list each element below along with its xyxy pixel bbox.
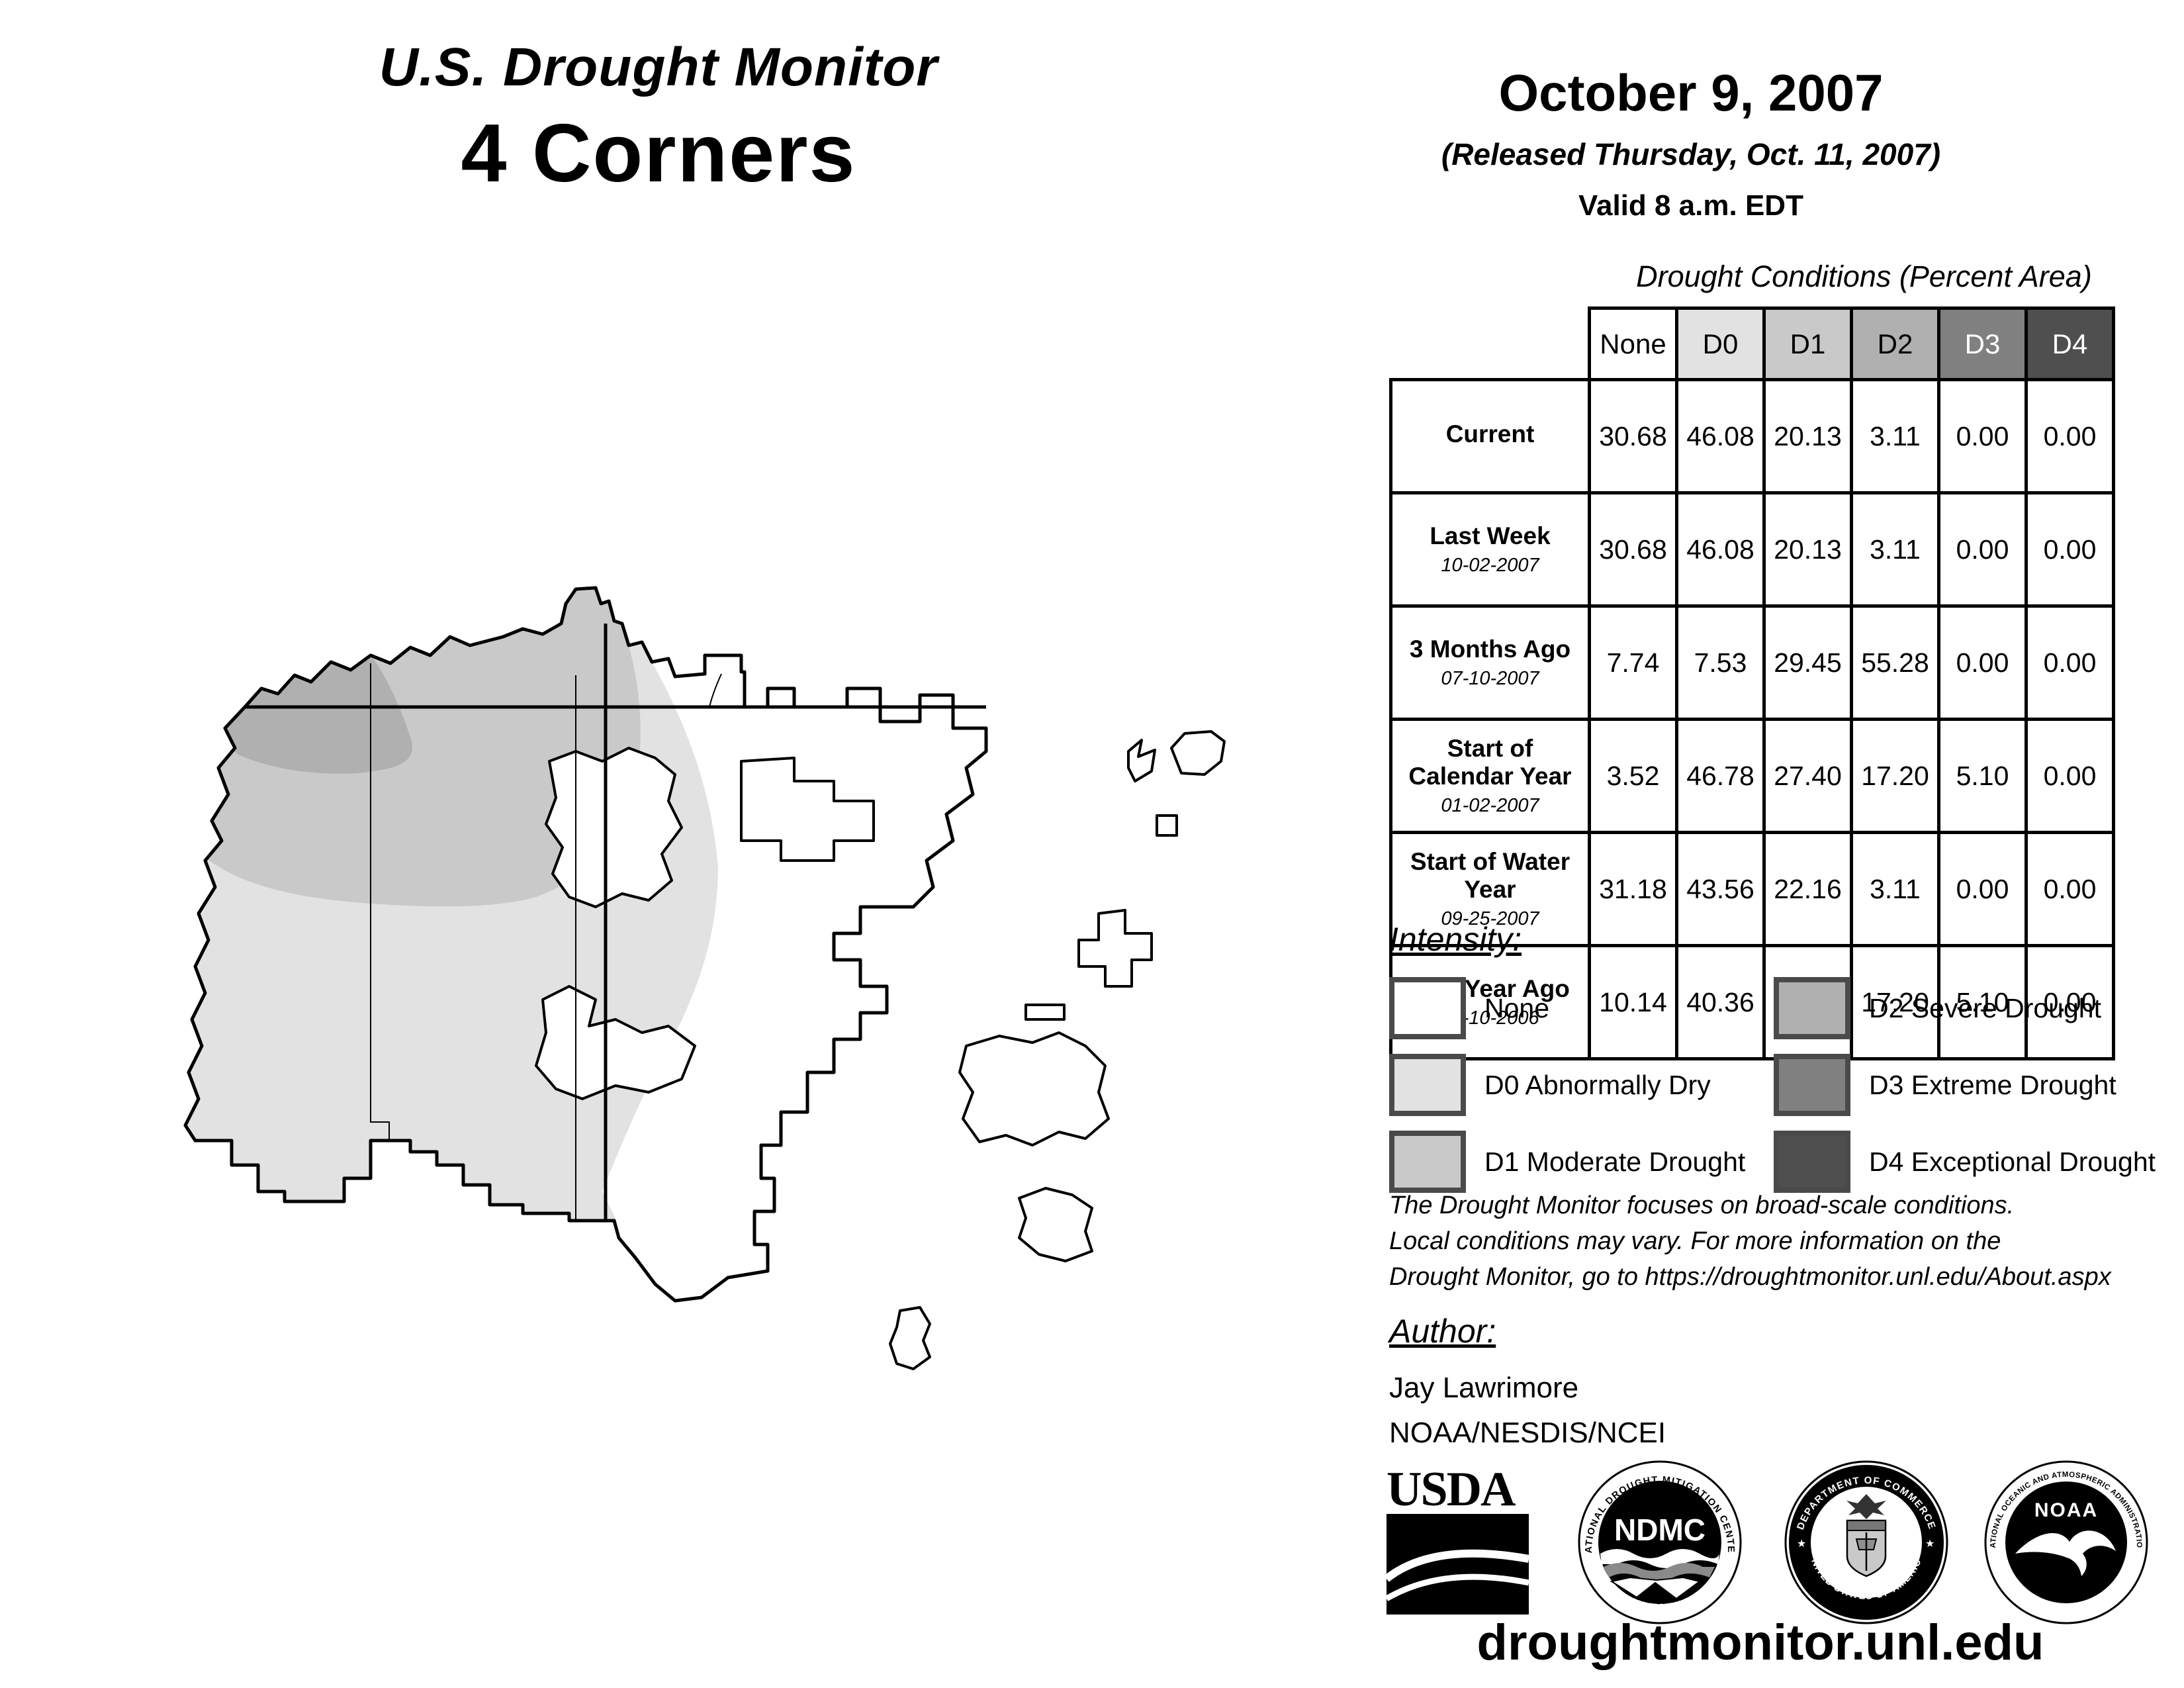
col-header-d0: D0: [1677, 308, 1764, 380]
col-header-d1: D1: [1764, 308, 1852, 380]
legend-item-d3: D3 Extreme Drought: [1774, 1054, 2116, 1116]
cell-value: 30.68: [1590, 380, 1677, 493]
cell-value: 0.00: [1939, 380, 2026, 493]
cell-value: 0.00: [1939, 493, 2026, 606]
author-block: Author: Jay Lawrimore NOAA/NESDIS/NCEI: [1389, 1312, 2117, 1450]
table-header-row: None D0 D1 D2 D3 D4: [1391, 308, 2114, 380]
table-row: Start of Calendar Year01-02-2007 3.52 46…: [1391, 720, 2114, 833]
legend-swatch-d1: [1389, 1131, 1466, 1193]
noaa-logo: NATIONAL OCEANIC AND ATMOSPHERIC ADMINIS…: [1983, 1460, 2149, 1625]
col-header-d2: D2: [1852, 308, 1939, 380]
usda-field-icon: [1387, 1514, 1529, 1615]
map-date: October 9, 2007: [1350, 63, 2032, 123]
cell-value: 55.28: [1852, 606, 1939, 720]
col-header-none: None: [1590, 308, 1677, 380]
map-island: [1079, 910, 1152, 986]
table-row: Last Week10-02-2007 30.68 46.08 20.13 3.…: [1391, 493, 2114, 606]
four-corners-map-svg: [40, 563, 1297, 1423]
map-island: [1026, 1005, 1064, 1019]
disclaimer-line: Drought Monitor, go to https://droughtmo…: [1389, 1260, 2170, 1295]
map-island: [1171, 731, 1224, 774]
cell-value: 27.40: [1764, 720, 1852, 833]
cell-value: 0.00: [2026, 493, 2114, 606]
map-island: [890, 1307, 930, 1369]
usda-logo: USDA: [1387, 1465, 1529, 1618]
map-island: [1019, 1188, 1092, 1261]
cell-value: 3.11: [1852, 493, 1939, 606]
intensity-legend: Intensity: None D0 Abnormally Dry D1 Mod…: [1389, 920, 2157, 1215]
row-label: Last Week10-02-2007: [1391, 493, 1590, 606]
doc-star-left: ★: [1797, 1538, 1806, 1550]
cell-value: 0.00: [2026, 606, 2114, 720]
legend-item-d0: D0 Abnormally Dry: [1389, 1054, 1711, 1116]
title-block: U.S. Drought Monitor 4 Corners: [218, 36, 1099, 201]
cell-value: 3.52: [1590, 720, 1677, 833]
report-title: U.S. Drought Monitor: [218, 36, 1099, 99]
drought-monitor-report: U.S. Drought Monitor 4 Corners October 9…: [0, 0, 2184, 1688]
cell-value: 20.13: [1764, 380, 1852, 493]
cell-value: 46.08: [1677, 380, 1764, 493]
row-label: Current: [1391, 380, 1590, 493]
county-enclave: [546, 748, 682, 907]
table-row: Current 30.68 46.08 20.13 3.11 0.00 0.00: [1391, 380, 2114, 493]
release-date: (Released Thursday, Oct. 11, 2007): [1350, 136, 2032, 172]
legend-swatch-none: [1389, 977, 1466, 1039]
author-heading: Author:: [1389, 1312, 2117, 1350]
doc-star-right: ★: [1925, 1538, 1934, 1550]
noaa-abbr: NOAA: [2034, 1499, 2098, 1521]
disclaimer-line: Local conditions may vary. For more info…: [1389, 1224, 2170, 1260]
legend-title: Intensity:: [1389, 920, 2157, 959]
table-row: 3 Months Ago07-10-2007 7.74 7.53 29.45 5…: [1391, 606, 2114, 720]
cell-value: 29.45: [1764, 606, 1852, 720]
legend-item-d4: D4 Exceptional Drought: [1774, 1131, 2156, 1193]
usda-wordmark: USDA: [1387, 1465, 1529, 1514]
legend-item-d1: D1 Moderate Drought: [1389, 1131, 1745, 1193]
table-title: Drought Conditions (Percent Area): [1591, 259, 2137, 294]
cell-value: 20.13: [1764, 493, 1852, 606]
disclaimer: The Drought Monitor focuses on broad-sca…: [1389, 1188, 2170, 1295]
row-label: Start of Calendar Year01-02-2007: [1391, 720, 1590, 833]
disclaimer-line: The Drought Monitor focuses on broad-sca…: [1389, 1188, 2170, 1224]
row-label: 3 Months Ago07-10-2007: [1391, 606, 1590, 720]
map-island: [1157, 816, 1177, 835]
legend-swatch-d3: [1774, 1054, 1850, 1116]
cell-value: 7.53: [1677, 606, 1764, 720]
author-name: Jay Lawrimore: [1389, 1372, 2117, 1405]
date-block: October 9, 2007 (Released Thursday, Oct.…: [1350, 63, 2032, 222]
site-url: droughtmonitor.unl.edu: [1350, 1614, 2171, 1671]
cell-value: 0.00: [1939, 606, 2026, 720]
region-title: 4 Corners: [218, 107, 1099, 201]
legend-item-d2: D2 Severe Drought: [1774, 977, 2101, 1039]
cell-value: 46.78: [1677, 720, 1764, 833]
cell-value: 0.00: [2026, 720, 2114, 833]
map-island: [960, 1033, 1109, 1145]
ndmc-logo: NATIONAL DROUGHT MITIGATION CENTER UNIVE…: [1577, 1460, 1743, 1625]
cell-value: 0.00: [2026, 380, 2114, 493]
legend-swatch-d0: [1389, 1054, 1466, 1116]
map-island: [1128, 740, 1155, 781]
cell-value: 17.20: [1852, 720, 1939, 833]
table-corner-cell: [1391, 308, 1590, 380]
cell-value: 5.10: [1939, 720, 2026, 833]
legend-item-none: None: [1389, 977, 1549, 1039]
drought-map: [40, 563, 1297, 1423]
col-header-d4: D4: [2026, 308, 2114, 380]
legend-swatch-d4: [1774, 1131, 1850, 1193]
col-header-d3: D3: [1939, 308, 2026, 380]
cell-value: 7.74: [1590, 606, 1677, 720]
cell-value: 30.68: [1590, 493, 1677, 606]
commerce-logo: DEPARTMENT OF COMMERCE UNITED STATES OF …: [1784, 1460, 1949, 1625]
agency-logos: USDA NATIONAL DROUGHT MITIGATION CENTER …: [1387, 1460, 2154, 1625]
legend-swatch-d2: [1774, 977, 1850, 1039]
valid-time: Valid 8 a.m. EDT: [1350, 189, 2032, 222]
legend-grid: None D0 Abnormally Dry D1 Moderate Droug…: [1389, 977, 2157, 1215]
ndmc-abbr: NDMC: [1614, 1513, 1706, 1547]
cell-value: 46.08: [1677, 493, 1764, 606]
cell-value: 3.11: [1852, 380, 1939, 493]
author-org: NOAA/NESDIS/NCEI: [1389, 1417, 2117, 1450]
